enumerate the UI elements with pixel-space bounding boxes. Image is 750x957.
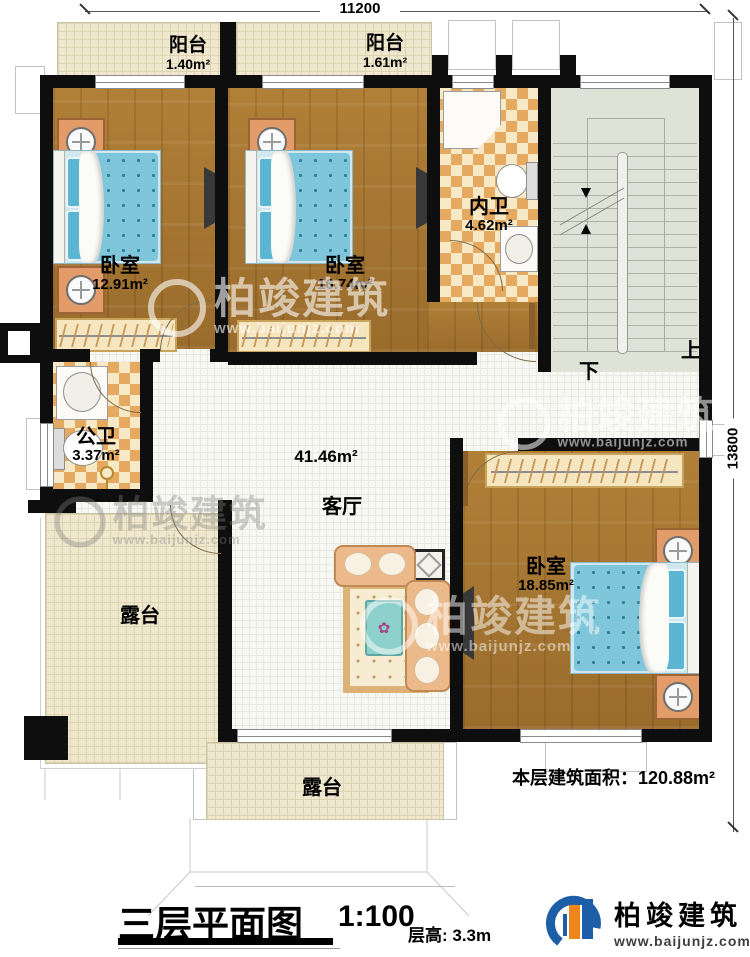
wall xyxy=(140,349,160,362)
wall xyxy=(40,75,53,362)
wall xyxy=(640,729,712,742)
stair-arrow-icon xyxy=(581,188,591,198)
living-area-label: 41.46m² xyxy=(266,448,386,467)
door-leaf xyxy=(463,451,468,506)
wardrobe xyxy=(237,320,371,353)
room-label-public-bath: 公卫 3.37m² xyxy=(36,426,156,465)
sofa-cushion xyxy=(414,656,440,684)
sofa-cushion xyxy=(378,552,406,576)
duct-box xyxy=(512,20,560,70)
sofa-cushion xyxy=(344,552,372,576)
wall xyxy=(28,500,76,513)
bed xyxy=(53,150,161,264)
toilet-bowl xyxy=(496,164,528,198)
bed xyxy=(245,150,353,264)
wall xyxy=(427,75,440,302)
window xyxy=(95,75,185,89)
wall xyxy=(699,88,712,742)
brand-logo-icon xyxy=(544,890,606,952)
bed-headboard xyxy=(54,151,65,263)
bed-sheet xyxy=(271,151,295,263)
brand-name: 柏竣建筑 xyxy=(614,894,750,933)
room-label-terrace-bottom: 露台 xyxy=(262,777,382,799)
bed-headboard xyxy=(246,151,257,263)
title-underline xyxy=(118,938,333,945)
tv xyxy=(416,167,427,229)
brand-logo: 柏竣建筑 www.baijunjz.com xyxy=(544,890,750,952)
stair-rail xyxy=(617,152,628,354)
sink-basin xyxy=(505,234,533,264)
room-label-inner-bath: 内卫 4.62m² xyxy=(429,196,549,235)
nightstand xyxy=(655,674,701,720)
coffee-table: ✿ xyxy=(365,600,403,656)
room-label-terrace-left: 露台 xyxy=(80,605,200,627)
terrace-left-floor xyxy=(45,513,220,764)
dimension-right-value: 13800 xyxy=(725,419,742,479)
wall xyxy=(40,349,90,362)
room-label-balcony1: 阳台 1.40m² xyxy=(128,36,248,72)
window xyxy=(580,75,670,89)
wardrobe xyxy=(55,318,177,352)
plan-scale: 1:100 xyxy=(338,900,415,934)
wall xyxy=(215,75,228,362)
bed-sheet xyxy=(79,151,103,263)
lamp-icon xyxy=(663,682,693,712)
room-label-bedroom1: 卧室 12.91m² xyxy=(60,255,180,294)
tv xyxy=(463,586,474,660)
stair-arrow-icon xyxy=(581,224,591,234)
wall xyxy=(218,729,237,742)
window xyxy=(452,75,494,89)
window xyxy=(262,75,364,89)
wall xyxy=(518,438,712,451)
duct-box xyxy=(448,20,496,70)
floor-plan: 上 下 xyxy=(0,0,750,957)
wall xyxy=(496,55,512,75)
side-table xyxy=(413,549,445,581)
tv xyxy=(204,167,215,229)
divider xyxy=(195,886,455,887)
window-sill xyxy=(714,22,742,80)
toilet-tank xyxy=(526,162,538,200)
sofa-cushion xyxy=(414,622,440,650)
sofa-two-seat xyxy=(334,545,416,587)
door-leaf xyxy=(529,303,535,349)
flue-opening xyxy=(8,331,30,355)
stairs-up-label: 上 xyxy=(681,334,701,363)
room-label-living: 客厅 xyxy=(282,496,402,518)
dimension-top-value: 11200 xyxy=(320,0,400,17)
window xyxy=(699,420,713,458)
floor-height-label: 层高: 3.3m xyxy=(408,921,491,946)
room-label-bedroom2: 卧室 16.74m² xyxy=(285,255,405,294)
column xyxy=(24,716,68,760)
room-label-balcony2: 阳台 1.61m² xyxy=(325,34,445,70)
wall xyxy=(210,349,228,362)
wall xyxy=(560,55,576,75)
title-underline-thin xyxy=(118,948,340,949)
bed-sheet xyxy=(639,563,669,673)
wall xyxy=(228,352,477,365)
terrace-rail xyxy=(442,742,457,820)
brand-website: www.baijunjz.com xyxy=(614,933,750,949)
floor-area-note: 本层建筑面积：120.88m² xyxy=(512,764,750,790)
sliding-door xyxy=(237,729,392,743)
sofa-three-seat xyxy=(405,580,451,692)
window xyxy=(520,729,642,743)
sofa-cushion xyxy=(414,588,440,616)
wall xyxy=(450,438,463,742)
staircase xyxy=(551,88,699,372)
stairs-down-label: 下 xyxy=(579,355,599,384)
room-label-bedroom3: 卧室 18.85m² xyxy=(486,556,606,595)
